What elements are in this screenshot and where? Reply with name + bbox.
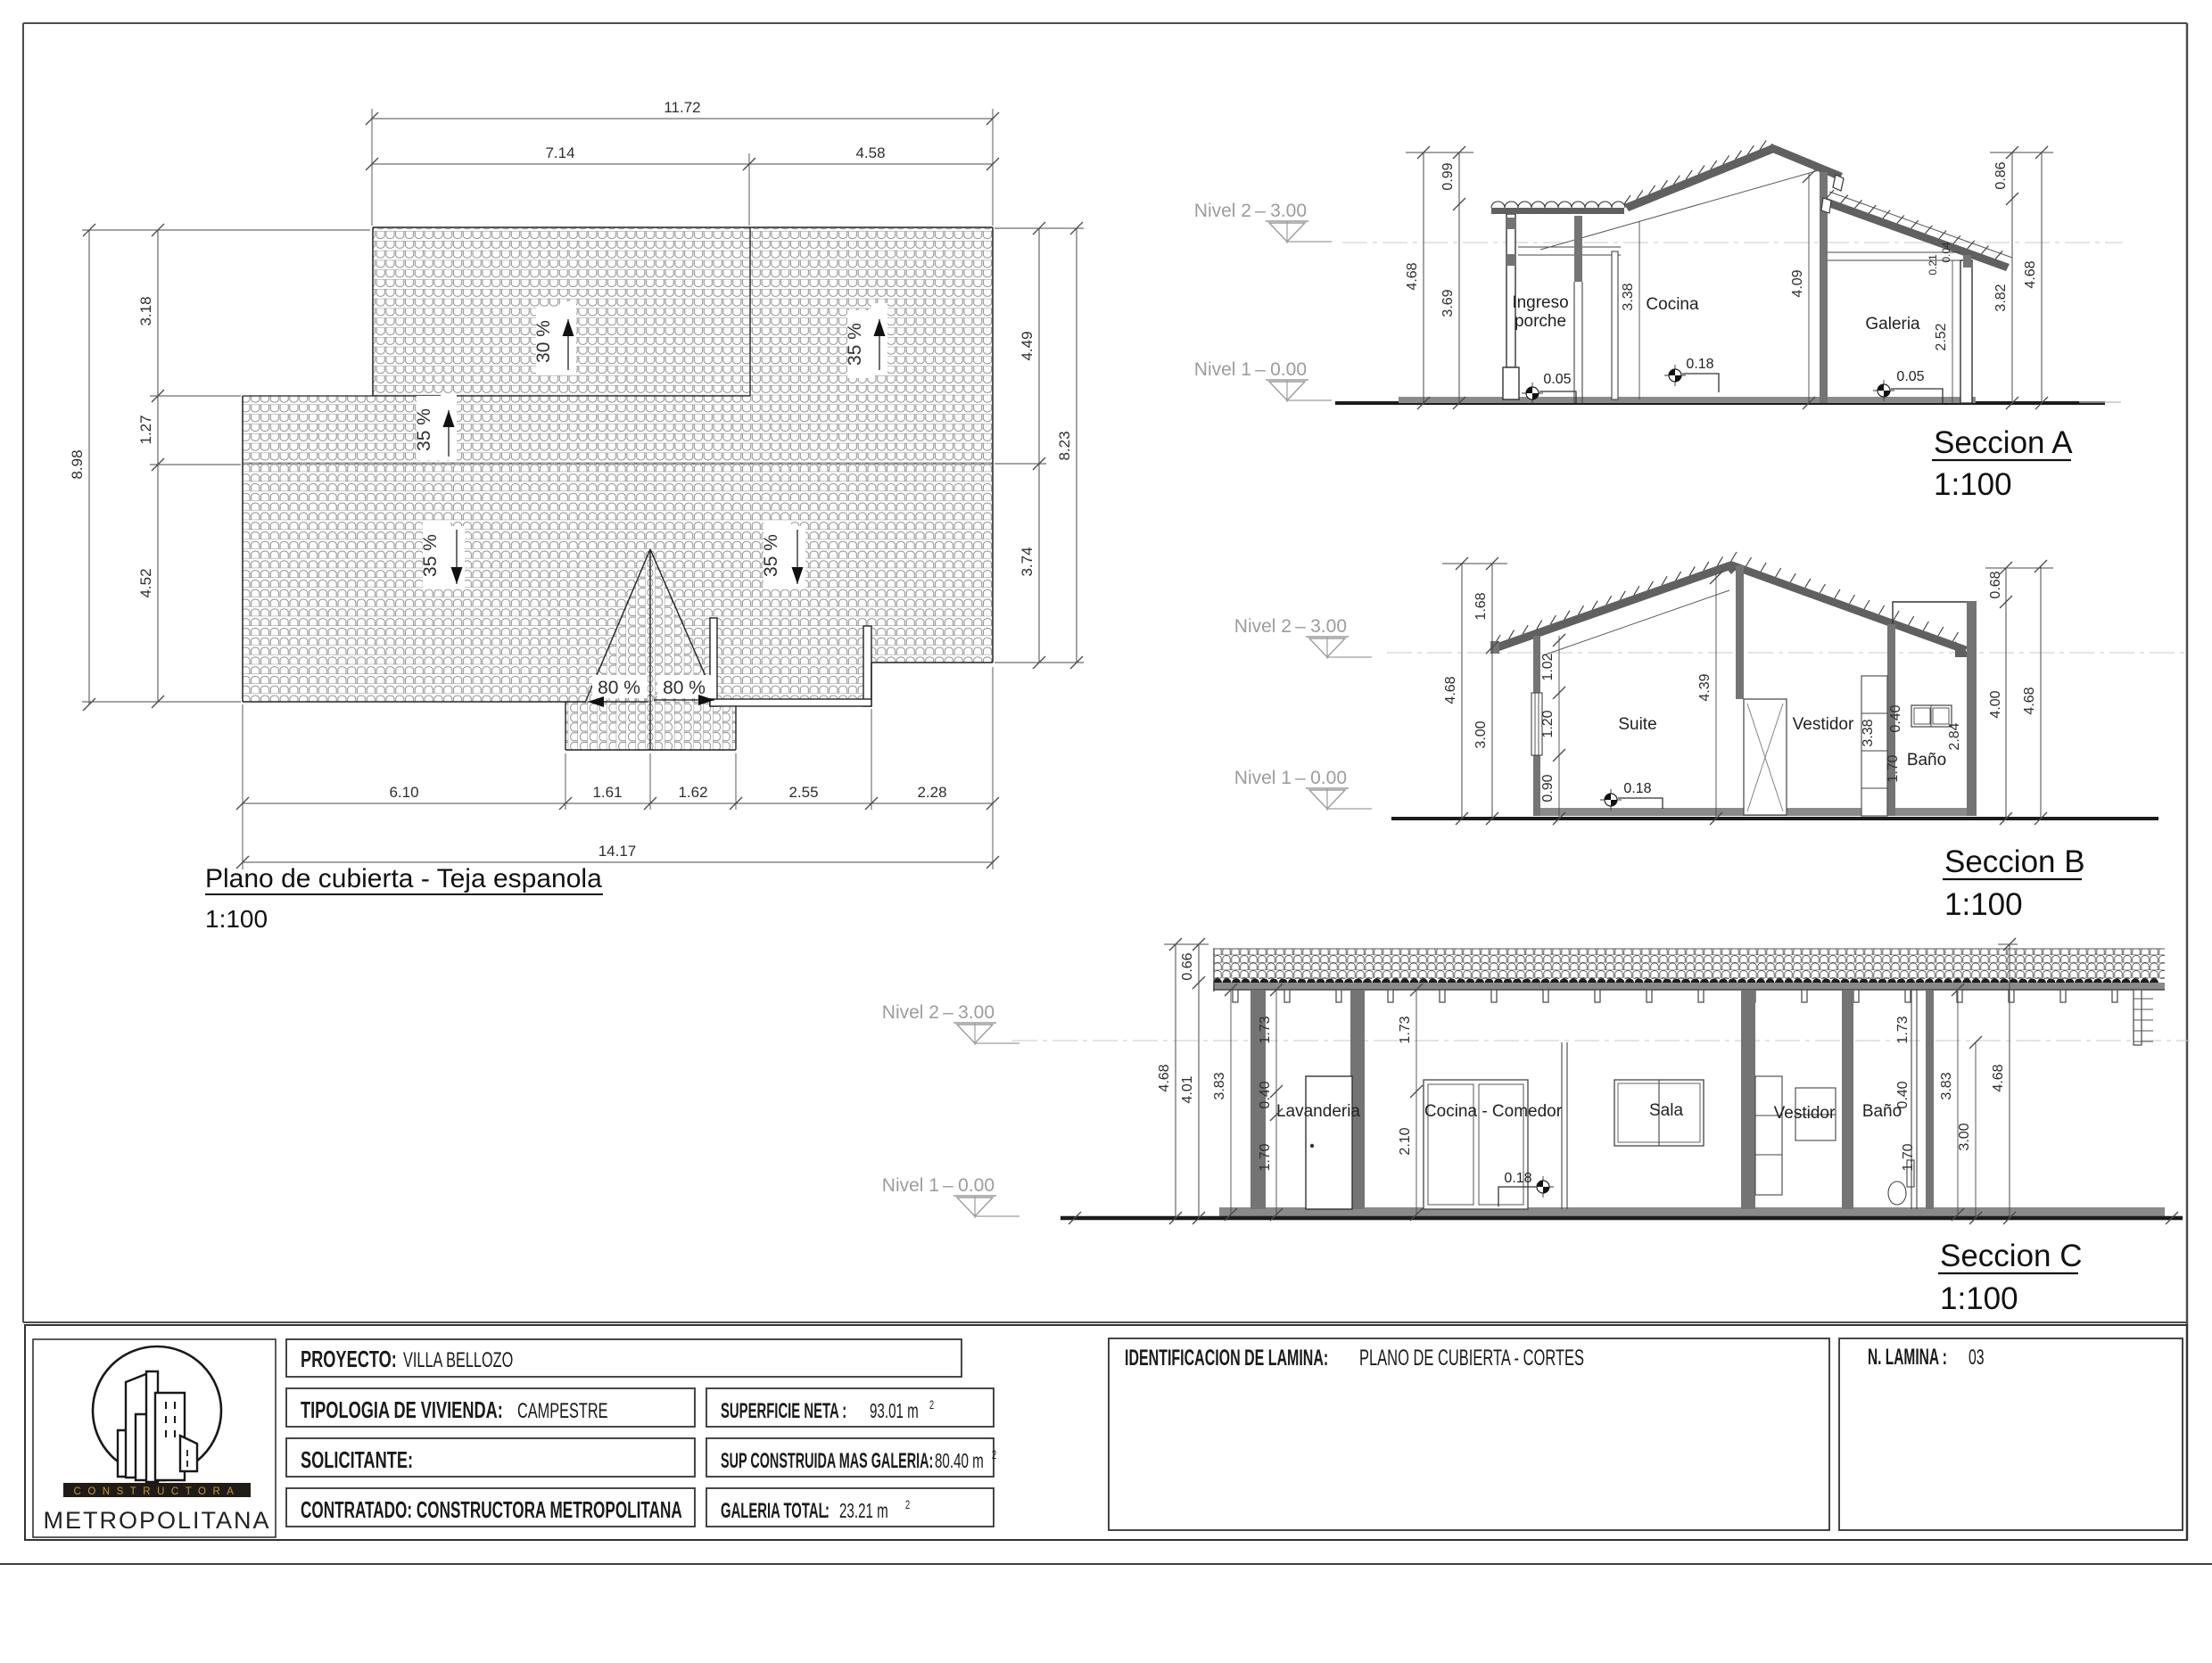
svg-text:0.05: 0.05 bbox=[1543, 372, 1571, 387]
svg-text:4.52: 4.52 bbox=[137, 568, 154, 597]
svg-text:IDENTIFICACION DE LAMINA:: IDENTIFICACION DE LAMINA: bbox=[1125, 1346, 1328, 1371]
svg-text:35 %: 35 % bbox=[414, 408, 434, 451]
svg-text:80.40 m: 80.40 m bbox=[935, 1450, 984, 1473]
svg-text:4.68: 4.68 bbox=[2022, 687, 2037, 714]
svg-text:35 %: 35 % bbox=[761, 534, 781, 577]
svg-text:6.10: 6.10 bbox=[389, 784, 418, 801]
svg-text:1.27: 1.27 bbox=[137, 415, 154, 444]
svg-text:–: – bbox=[1255, 359, 1266, 380]
svg-text:1.73: 1.73 bbox=[1895, 1016, 1911, 1043]
svg-text:1:100: 1:100 bbox=[1934, 467, 2012, 502]
svg-text:1.70: 1.70 bbox=[1886, 754, 1901, 782]
svg-text:11.72: 11.72 bbox=[664, 99, 700, 116]
svg-text:4.68: 4.68 bbox=[1443, 676, 1458, 704]
svg-text:4.68: 4.68 bbox=[1157, 1064, 1172, 1091]
svg-text:porche: porche bbox=[1515, 312, 1566, 331]
svg-text:–: – bbox=[1255, 201, 1266, 221]
svg-text:2.10: 2.10 bbox=[1398, 1127, 1413, 1155]
svg-text:VILLA BELLOZO: VILLA BELLOZO bbox=[403, 1348, 513, 1372]
svg-text:Vestidor: Vestidor bbox=[1793, 715, 1854, 734]
svg-text:8.98: 8.98 bbox=[69, 449, 86, 479]
svg-text:CAMPESTRE: CAMPESTRE bbox=[517, 1399, 608, 1423]
svg-text:3.82: 3.82 bbox=[1993, 284, 2009, 311]
svg-text:3.00: 3.00 bbox=[1310, 616, 1347, 637]
svg-text:Cocina: Cocina bbox=[1646, 295, 1699, 314]
svg-text:Vestidor: Vestidor bbox=[1774, 1104, 1836, 1123]
svg-text:4.68: 4.68 bbox=[1991, 1064, 2006, 1091]
svg-text:Nivel 2: Nivel 2 bbox=[1234, 616, 1292, 637]
svg-text:3.18: 3.18 bbox=[137, 296, 154, 325]
svg-text:0.40: 0.40 bbox=[1258, 1081, 1273, 1108]
svg-text:2: 2 bbox=[992, 1447, 996, 1462]
svg-text:Nivel 2: Nivel 2 bbox=[882, 1002, 939, 1023]
svg-text:Baño: Baño bbox=[1907, 751, 1946, 770]
svg-text:Nivel 1: Nivel 1 bbox=[1234, 768, 1292, 788]
svg-text:2.52: 2.52 bbox=[1934, 323, 1949, 350]
svg-text:0.86: 0.86 bbox=[1993, 161, 2009, 189]
svg-text:–: – bbox=[1295, 616, 1306, 637]
svg-text:7.14: 7.14 bbox=[545, 144, 574, 161]
svg-text:14.17: 14.17 bbox=[598, 843, 637, 860]
svg-text:3.00: 3.00 bbox=[1957, 1123, 1972, 1150]
svg-text:PLANO DE CUBIERTA - CORTES: PLANO DE CUBIERTA - CORTES bbox=[1359, 1346, 1584, 1371]
svg-text:4.39: 4.39 bbox=[1697, 673, 1713, 701]
svg-text:8.23: 8.23 bbox=[1056, 431, 1073, 460]
svg-text:PROYECTO:: PROYECTO: bbox=[301, 1346, 397, 1372]
svg-text:4.58: 4.58 bbox=[855, 144, 885, 161]
svg-text:Suite: Suite bbox=[1618, 715, 1656, 734]
svg-text:0.90: 0.90 bbox=[1540, 774, 1556, 802]
svg-text:2: 2 bbox=[905, 1497, 910, 1512]
svg-text:3.83: 3.83 bbox=[1212, 1072, 1227, 1099]
svg-text:0.66: 0.66 bbox=[1180, 952, 1195, 980]
svg-text:3.38: 3.38 bbox=[1621, 283, 1636, 310]
svg-text:3.00: 3.00 bbox=[1270, 201, 1307, 221]
svg-text:Nivel 1: Nivel 1 bbox=[882, 1175, 939, 1196]
svg-text:1.73: 1.73 bbox=[1398, 1016, 1413, 1043]
svg-text:3.38: 3.38 bbox=[1861, 719, 1876, 746]
svg-text:0.40: 0.40 bbox=[1895, 1081, 1911, 1108]
svg-text:Seccion C: Seccion C bbox=[1940, 1239, 2083, 1273]
svg-text:1.61: 1.61 bbox=[592, 784, 622, 801]
svg-text:4.00: 4.00 bbox=[1988, 690, 2003, 718]
svg-text:3.83: 3.83 bbox=[1939, 1072, 1954, 1099]
svg-text:23.21 m: 23.21 m bbox=[839, 1500, 888, 1523]
svg-text::: : bbox=[825, 1500, 829, 1523]
svg-text:3.00: 3.00 bbox=[958, 1002, 995, 1023]
svg-text:03: 03 bbox=[1969, 1346, 1985, 1370]
svg-text:0.40: 0.40 bbox=[1888, 704, 1903, 732]
svg-text:SUP CONSTRUIDA MAS GALERIA:: SUP CONSTRUIDA MAS GALERIA: bbox=[721, 1449, 933, 1473]
svg-text:CONSTRUCTORA: CONSTRUCTORA bbox=[74, 1486, 241, 1497]
svg-text:4.68: 4.68 bbox=[1405, 262, 1420, 290]
svg-text:2.84: 2.84 bbox=[1947, 722, 1962, 750]
svg-text:0.21: 0.21 bbox=[1927, 254, 1939, 276]
svg-text:0.05: 0.05 bbox=[1896, 369, 1924, 384]
svg-text:0.18: 0.18 bbox=[1504, 1171, 1531, 1186]
svg-text:1.68: 1.68 bbox=[1473, 592, 1489, 620]
svg-text:35 %: 35 % bbox=[845, 323, 865, 366]
svg-text:Cocina - Comedor: Cocina - Comedor bbox=[1424, 1102, 1563, 1121]
svg-text:4.09: 4.09 bbox=[1790, 269, 1805, 297]
svg-text:0.99: 0.99 bbox=[1440, 162, 1456, 190]
svg-text:0.04: 0.04 bbox=[1940, 242, 1952, 263]
svg-text:80 %: 80 % bbox=[598, 678, 640, 698]
svg-text:4.01: 4.01 bbox=[1180, 1075, 1195, 1103]
svg-text:Lavanderia: Lavanderia bbox=[1276, 1102, 1360, 1121]
svg-text:93.01 m: 93.01 m bbox=[870, 1400, 919, 1423]
svg-text:Plano de cubierta - Teja espan: Plano de cubierta - Teja espanola bbox=[205, 864, 602, 893]
svg-text:0.68: 0.68 bbox=[1988, 571, 2003, 598]
svg-text:0.00: 0.00 bbox=[1270, 359, 1307, 380]
svg-text:1.20: 1.20 bbox=[1540, 710, 1556, 737]
svg-text:4.68: 4.68 bbox=[2023, 260, 2038, 288]
svg-text:1.70: 1.70 bbox=[1258, 1143, 1273, 1171]
svg-text:–: – bbox=[943, 1002, 953, 1023]
svg-text:TIPOLOGIA DE VIVIENDA:: TIPOLOGIA DE VIVIENDA: bbox=[301, 1397, 503, 1423]
svg-text:4.49: 4.49 bbox=[1019, 331, 1036, 360]
svg-text:SUPERFICIE NETA :: SUPERFICIE NETA : bbox=[721, 1400, 846, 1423]
svg-text:Seccion B: Seccion B bbox=[1944, 844, 2085, 879]
svg-text:Seccion A: Seccion A bbox=[1934, 425, 2073, 460]
svg-text:1:100: 1:100 bbox=[1940, 1281, 2018, 1316]
svg-text:Sala: Sala bbox=[1649, 1101, 1683, 1120]
svg-text:1:100: 1:100 bbox=[1944, 887, 2023, 922]
svg-text:2.28: 2.28 bbox=[917, 784, 946, 801]
svg-text:–: – bbox=[943, 1175, 953, 1196]
svg-text:–: – bbox=[1295, 768, 1306, 788]
svg-text:1.73: 1.73 bbox=[1258, 1016, 1273, 1043]
svg-text:2.55: 2.55 bbox=[788, 784, 818, 801]
svg-text:35 %: 35 % bbox=[420, 534, 441, 577]
svg-text:CONTRATADO: CONSTRUCTORA METRO: CONTRATADO: CONSTRUCTORA METROPOLITANA bbox=[301, 1496, 682, 1523]
svg-text:Galeria: Galeria bbox=[1865, 315, 1920, 333]
svg-text:1.70: 1.70 bbox=[1901, 1143, 1916, 1171]
svg-text:3.74: 3.74 bbox=[1019, 547, 1036, 576]
svg-text:0.00: 0.00 bbox=[958, 1175, 995, 1196]
svg-text:30 %: 30 % bbox=[533, 320, 554, 363]
svg-text:Ingreso: Ingreso bbox=[1512, 293, 1568, 312]
svg-text:Nivel 2: Nivel 2 bbox=[1194, 201, 1251, 221]
svg-text:Nivel 1: Nivel 1 bbox=[1194, 359, 1251, 380]
svg-text:0.00: 0.00 bbox=[1310, 768, 1347, 788]
svg-text:1:100: 1:100 bbox=[205, 905, 268, 933]
svg-text:SOLICITANTE:: SOLICITANTE: bbox=[301, 1447, 413, 1473]
svg-text:0.18: 0.18 bbox=[1623, 781, 1651, 796]
svg-text:GALERIA TOTAL: GALERIA TOTAL bbox=[721, 1500, 827, 1523]
svg-text:METROPOLITANA: METROPOLITANA bbox=[43, 1507, 270, 1534]
svg-text:1.62: 1.62 bbox=[678, 784, 707, 801]
svg-text:1.02: 1.02 bbox=[1540, 653, 1556, 680]
svg-text:3.69: 3.69 bbox=[1440, 289, 1456, 317]
svg-text:0.18: 0.18 bbox=[1686, 357, 1713, 372]
svg-text:N. LAMINA :: N. LAMINA : bbox=[1868, 1345, 1947, 1370]
svg-text:3.00: 3.00 bbox=[1473, 720, 1489, 748]
svg-text:2: 2 bbox=[929, 1397, 934, 1412]
